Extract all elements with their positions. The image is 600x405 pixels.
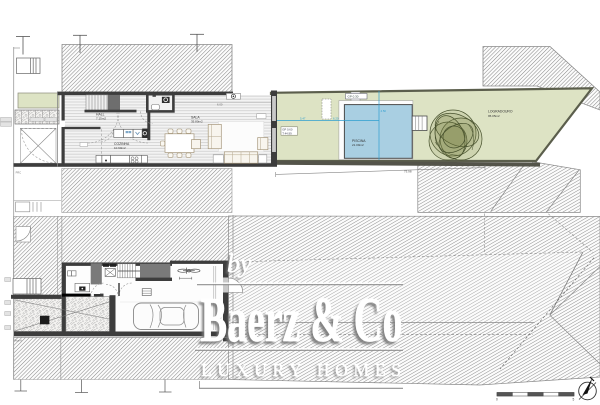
svg-text:PRC: PRC: [16, 171, 22, 175]
svg-text:6.20: 6.20: [333, 116, 339, 120]
svg-text:Rua-A: Rua-A: [15, 339, 23, 343]
svg-text:4.50: 4.50: [381, 109, 387, 113]
svg-text:7.15m2: 7.15m2: [96, 116, 106, 120]
svg-text:6.00: 6.00: [217, 103, 223, 107]
svg-text:73.98: 73.98: [404, 170, 412, 174]
svg-text:35.80m2: 35.80m2: [191, 119, 203, 123]
svg-text:0: 0: [496, 398, 498, 402]
svg-text:95.05m2: 95.05m2: [488, 114, 500, 118]
svg-text:Baerz & Co: Baerz & Co: [201, 285, 403, 355]
svg-text:T 44.99: T 44.99: [282, 131, 292, 135]
svg-text:GP 0.30: GP 0.30: [348, 95, 359, 99]
svg-text:21.09m2: 21.09m2: [352, 143, 364, 147]
svg-text:by: by: [227, 249, 252, 278]
svg-text:10.90m2: 10.90m2: [114, 146, 126, 150]
svg-text:5.47: 5.47: [300, 116, 306, 120]
svg-text:5: 5: [573, 398, 575, 402]
